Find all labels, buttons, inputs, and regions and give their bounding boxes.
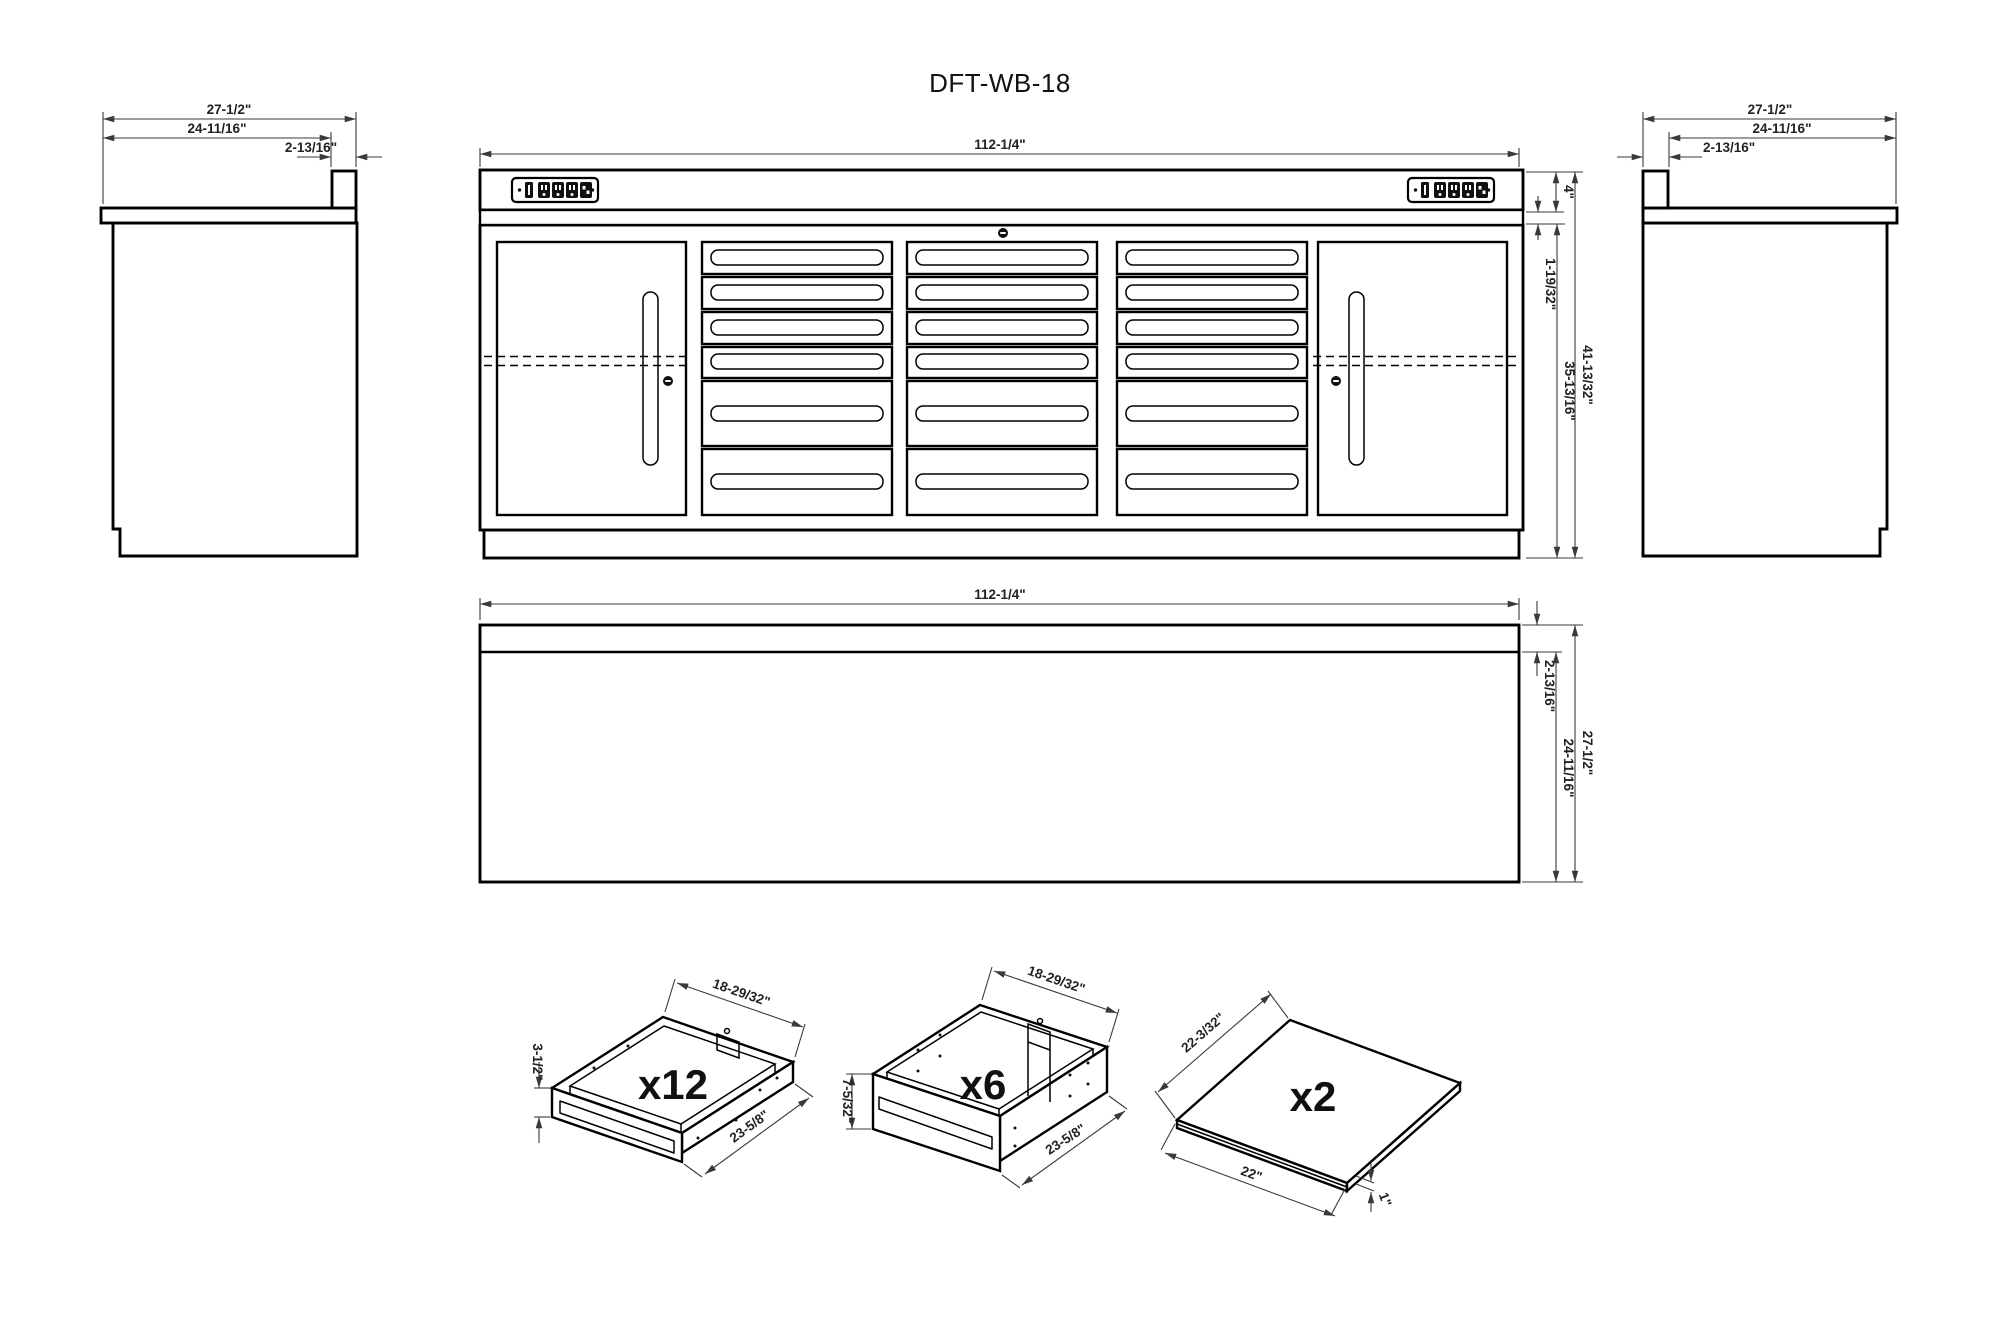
dim-label: 24-11/16"	[1561, 739, 1576, 798]
quantity-label: x6	[960, 1061, 1007, 1108]
dim-label: 22-3/32"	[1178, 1010, 1227, 1056]
latch-hole	[725, 1029, 730, 1034]
dim-label: 7-5/32"	[840, 1079, 855, 1124]
ext-line	[1109, 1009, 1119, 1042]
ext-line	[982, 967, 992, 1000]
worktop-front-edge	[480, 170, 1523, 210]
ext-line	[795, 1024, 805, 1057]
top-view: 112-1/4" 2-13/16" 24-11/16" 27-1/2"	[480, 587, 1595, 882]
side-backsplash	[332, 171, 356, 208]
dim-label: 41-13/32"	[1580, 345, 1595, 405]
drawing-title: DFT-WB-18	[929, 68, 1071, 98]
front-view: 112-1/4" 4" 1-19/32" 35-13/16" 41-13/32"	[480, 137, 1595, 558]
side-worktop	[101, 208, 356, 223]
worktop-plan	[480, 625, 1519, 882]
dim-label: 2-13/16"	[1703, 140, 1755, 155]
right-cabinet-door	[1313, 242, 1519, 515]
center-lock	[998, 228, 1008, 238]
dim-small-drawer-height: 3-1/2"	[530, 1043, 550, 1143]
dim-top-depths: 2-13/16" 24-11/16" 27-1/2"	[1522, 601, 1595, 882]
dim-front-width: 112-1/4"	[480, 137, 1519, 167]
left-cabinet-door	[484, 242, 692, 515]
dim-label: 4"	[1561, 185, 1576, 199]
drawer-bank-1	[702, 242, 892, 515]
drawing-canvas: DFT-WB-18 27-1/2" 24-11/16" 2-13/16"	[0, 0, 2000, 1334]
power-strip-right	[1408, 178, 1494, 202]
drawer-bank-2	[907, 242, 1097, 515]
quantity-label: x12	[638, 1061, 708, 1108]
dim-label: 1-19/32"	[1543, 258, 1558, 310]
drawer-bank-3	[1117, 242, 1307, 515]
ext-line	[1155, 1091, 1175, 1118]
dim-label: 1"	[1376, 1190, 1395, 1208]
ext-line	[1356, 1184, 1374, 1191]
left-side-view: 27-1/2" 24-11/16" 2-13/16"	[101, 102, 382, 556]
quantity-label: x2	[1290, 1073, 1337, 1120]
dim-label: 24-11/16"	[1753, 121, 1812, 136]
ext-line	[1161, 1124, 1175, 1150]
power-strip-left	[512, 178, 598, 202]
ext-line	[665, 979, 675, 1012]
ext-line	[1331, 1189, 1345, 1215]
detail-deep-drawer: 18-29/32" 7-5/32" 23-5/8" x6	[840, 963, 1127, 1188]
dim-deep-drawer-height: 7-5/32"	[840, 1074, 871, 1129]
side-cabinet-body	[1643, 223, 1887, 556]
detail-shelf: 22-3/32" 22" 1" x2	[1155, 991, 1460, 1216]
dim-label: 27-1/2"	[1580, 731, 1595, 776]
detail-small-drawer: 18-29/32" 3-1/2" 23-5/8" x12	[530, 976, 813, 1177]
side-cabinet-body	[113, 223, 357, 556]
latch-hole	[1038, 1019, 1043, 1024]
dim-label: 24-11/16"	[188, 121, 247, 136]
dim-label: 3-1/2"	[530, 1043, 545, 1080]
dim-front-heights: 4" 1-19/32" 35-13/16" 41-13/32"	[1526, 172, 1595, 558]
worktop-sub-rail	[480, 210, 1523, 225]
dim-label: 112-1/4"	[974, 587, 1025, 602]
ext-line	[1002, 1175, 1020, 1188]
dim-top-width: 112-1/4"	[480, 587, 1519, 620]
right-side-view: 27-1/2" 24-11/16" 2-13/16"	[1617, 102, 1897, 556]
dim-label: 18-29/32"	[711, 976, 772, 1010]
ext-line	[1268, 991, 1288, 1018]
dim-label: 2-13/16"	[1542, 660, 1557, 712]
ext-line	[684, 1164, 702, 1177]
door-panel	[1318, 242, 1507, 515]
dim-label: 112-1/4"	[974, 137, 1025, 152]
dim-label: 18-29/32"	[1026, 963, 1087, 997]
cabinet-base	[484, 530, 1519, 558]
dim-label: 2-13/16"	[285, 140, 337, 155]
ext-line	[1109, 1096, 1127, 1109]
door-lock	[663, 376, 673, 386]
technical-drawing-sheet: DFT-WB-18 27-1/2" 24-11/16" 2-13/16"	[0, 0, 2000, 1334]
ext-line	[795, 1084, 813, 1097]
dim-label: 27-1/2"	[1748, 102, 1793, 117]
dim-label: 27-1/2"	[207, 102, 252, 117]
side-backsplash	[1643, 171, 1668, 208]
side-worktop	[1643, 208, 1897, 223]
door-lock	[1331, 376, 1341, 386]
